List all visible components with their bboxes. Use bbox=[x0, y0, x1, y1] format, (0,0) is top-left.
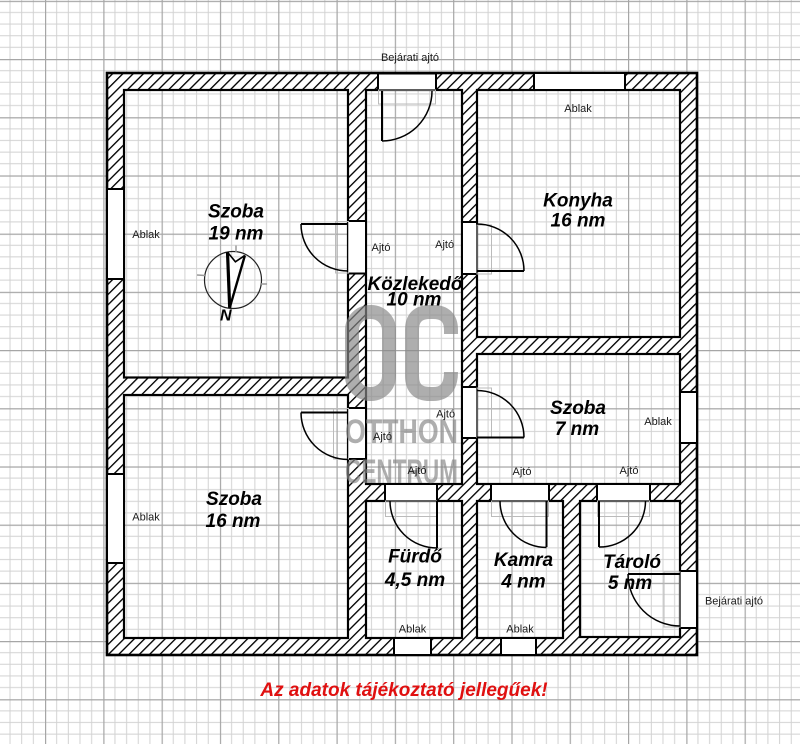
svg-text:Szoba: Szoba bbox=[550, 398, 606, 419]
svg-text:Ablak: Ablak bbox=[132, 512, 160, 524]
svg-text:Kamra: Kamra bbox=[494, 550, 554, 571]
svg-text:Konyha: Konyha bbox=[543, 191, 613, 212]
svg-text:Bejárati ajtó: Bejárati ajtó bbox=[381, 52, 439, 64]
svg-text:Ablak: Ablak bbox=[506, 624, 534, 636]
svg-text:Az adatok tájékoztató jellegűe: Az adatok tájékoztató jellegűek! bbox=[259, 680, 547, 701]
svg-text:CENTRUM: CENTRUM bbox=[345, 453, 458, 491]
svg-text:Ablak: Ablak bbox=[644, 416, 672, 428]
svg-text:Tároló: Tároló bbox=[603, 552, 661, 573]
svg-text:Szoba: Szoba bbox=[206, 489, 262, 510]
svg-text:N: N bbox=[220, 308, 232, 325]
svg-text:4 nm: 4 nm bbox=[500, 572, 545, 593]
svg-text:19 nm: 19 nm bbox=[209, 224, 264, 245]
svg-text:7 nm: 7 nm bbox=[555, 419, 599, 440]
svg-text:Ajtó: Ajtó bbox=[373, 431, 392, 443]
svg-text:Szoba: Szoba bbox=[208, 202, 264, 223]
svg-text:Bejárati ajtó: Bejárati ajtó bbox=[705, 596, 763, 608]
svg-text:Fürdő: Fürdő bbox=[388, 547, 443, 568]
svg-text:Ajtó: Ajtó bbox=[436, 409, 455, 421]
svg-text:Ajtó: Ajtó bbox=[372, 242, 391, 254]
svg-text:Ajtó: Ajtó bbox=[513, 466, 532, 478]
svg-text:16 nm: 16 nm bbox=[551, 211, 606, 232]
svg-text:4,5 nm: 4,5 nm bbox=[384, 570, 445, 591]
svg-text:Ablak: Ablak bbox=[564, 103, 592, 115]
svg-text:10 nm: 10 nm bbox=[387, 290, 442, 311]
svg-text:Ajtó: Ajtó bbox=[408, 465, 427, 477]
svg-text:Ajtó: Ajtó bbox=[620, 465, 639, 477]
svg-text:Ajtó: Ajtó bbox=[435, 239, 454, 251]
svg-text:Ablak: Ablak bbox=[399, 624, 427, 636]
svg-text:5 nm: 5 nm bbox=[608, 573, 652, 594]
svg-text:Ablak: Ablak bbox=[132, 229, 160, 241]
svg-text:16 nm: 16 nm bbox=[206, 511, 261, 532]
